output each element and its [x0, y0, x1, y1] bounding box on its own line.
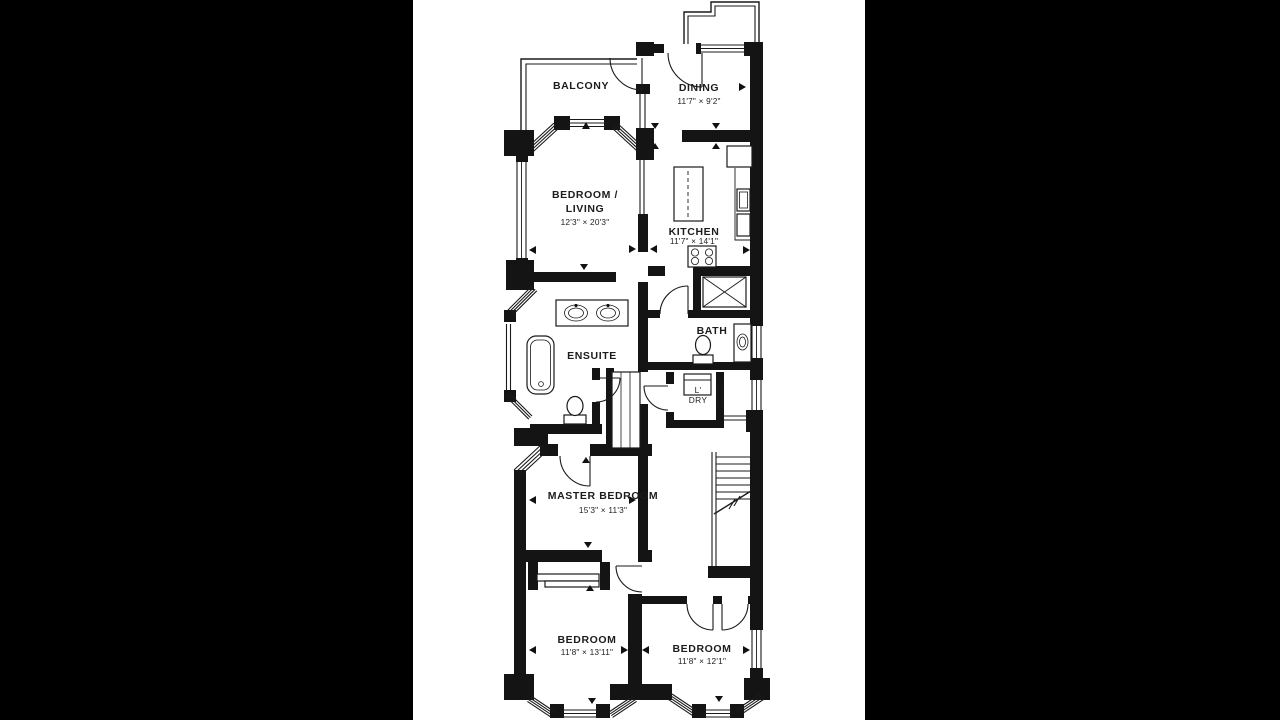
bath-label: BATH — [697, 325, 728, 337]
dining-dims: 11'7" × 9'2" — [677, 96, 720, 106]
ensuite-double-vanity — [556, 300, 628, 326]
stove — [688, 246, 716, 267]
hall-right-window — [749, 380, 764, 410]
closet-shelving — [612, 372, 640, 448]
living-kitchen-glazing — [637, 160, 649, 214]
master-bedroom-label: MASTER BEDROOM — [548, 490, 658, 502]
kitchen-sink — [737, 189, 750, 211]
refrigerator — [727, 146, 752, 167]
ensuite-label: ENSUITE — [567, 350, 617, 362]
bathtub — [527, 336, 554, 394]
dishwasher — [737, 214, 750, 236]
bedroom-left-label: BEDROOM — [557, 634, 616, 646]
bedroom-living-label-2: LIVING — [566, 203, 605, 215]
floorplan-drawing: BALCONY DINING 11'7" × 9'2" BEDROOM / LI… — [0, 0, 1280, 720]
laundry-label-1: L' — [695, 385, 702, 395]
laundry-label-2: DRY — [689, 395, 708, 405]
sliding-closet — [537, 574, 599, 587]
bedroom-right-window — [749, 630, 764, 668]
dining-label: DINING — [679, 82, 719, 94]
balcony-label: BALCONY — [553, 80, 609, 92]
kitchen-dims: 11'7" × 14'1" — [670, 236, 718, 246]
floorplan-page: BALCONY DINING 11'7" × 9'2" BEDROOM / LI… — [0, 0, 1280, 720]
living-left-window — [515, 162, 529, 258]
master-bedroom-dims: 15'3" × 11'3" — [579, 505, 627, 515]
kitchen-island — [674, 167, 703, 221]
bedroom-right-dims: 11'8" × 12'1" — [678, 656, 726, 666]
bedroom-right-label: BEDROOM — [672, 643, 731, 655]
bedroom-left-dims: 11'8" × 13'11" — [561, 647, 613, 657]
shower — [703, 277, 746, 307]
bedroom-living-label-1: BEDROOM / — [552, 189, 618, 201]
bedroom-living-dims: 12'3" × 20'3" — [561, 217, 610, 227]
bath-vanity-sink — [734, 324, 751, 362]
